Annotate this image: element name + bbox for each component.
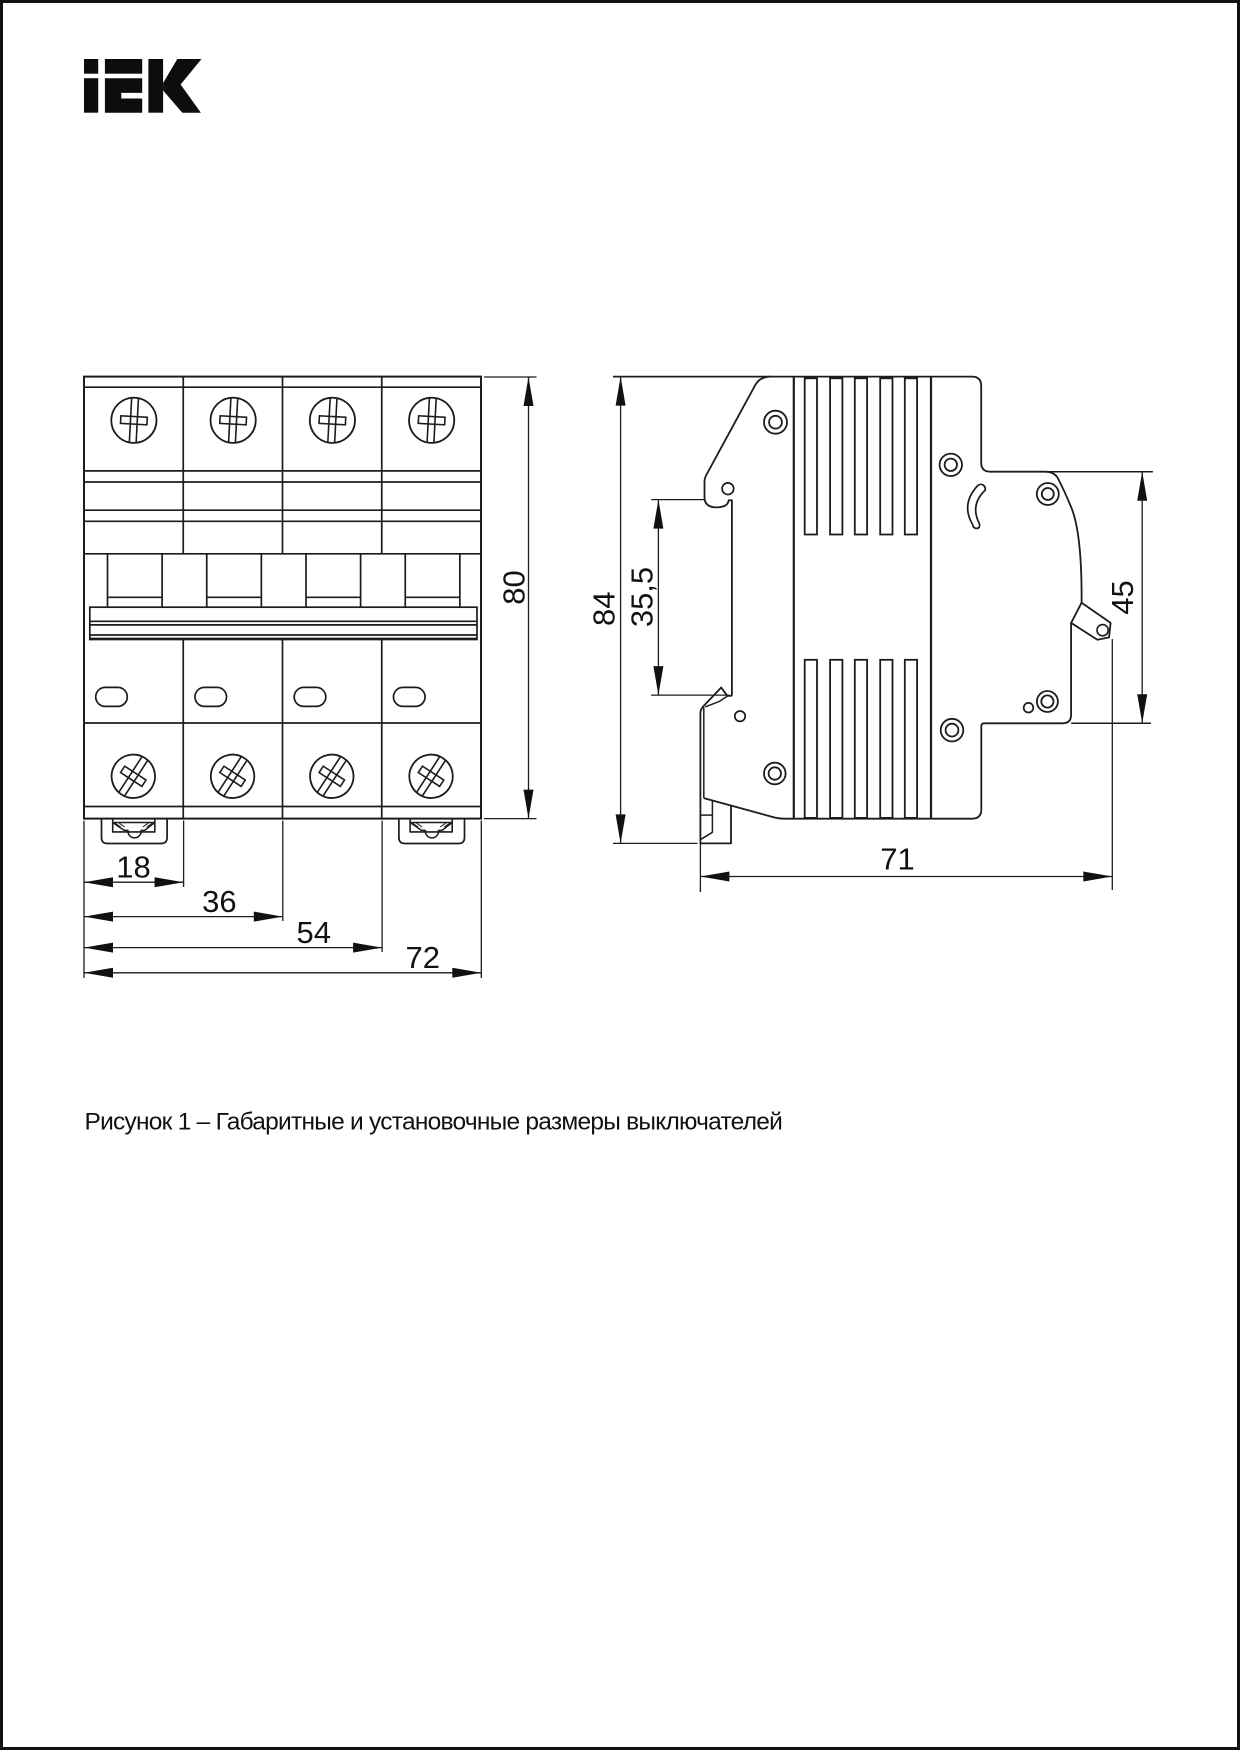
svg-text:72: 72 [406,940,440,975]
svg-text:54: 54 [296,915,330,950]
svg-text:71: 71 [880,841,914,876]
svg-text:18: 18 [116,849,150,884]
svg-text:36: 36 [202,884,236,919]
svg-text:45: 45 [1105,580,1140,614]
svg-text:84: 84 [587,592,622,626]
svg-text:35,5: 35,5 [624,567,659,627]
svg-text:80: 80 [497,570,532,604]
svg-text:Рисунок 1 – Габаритные и устан: Рисунок 1 – Габаритные и установочные ра… [85,1108,783,1135]
